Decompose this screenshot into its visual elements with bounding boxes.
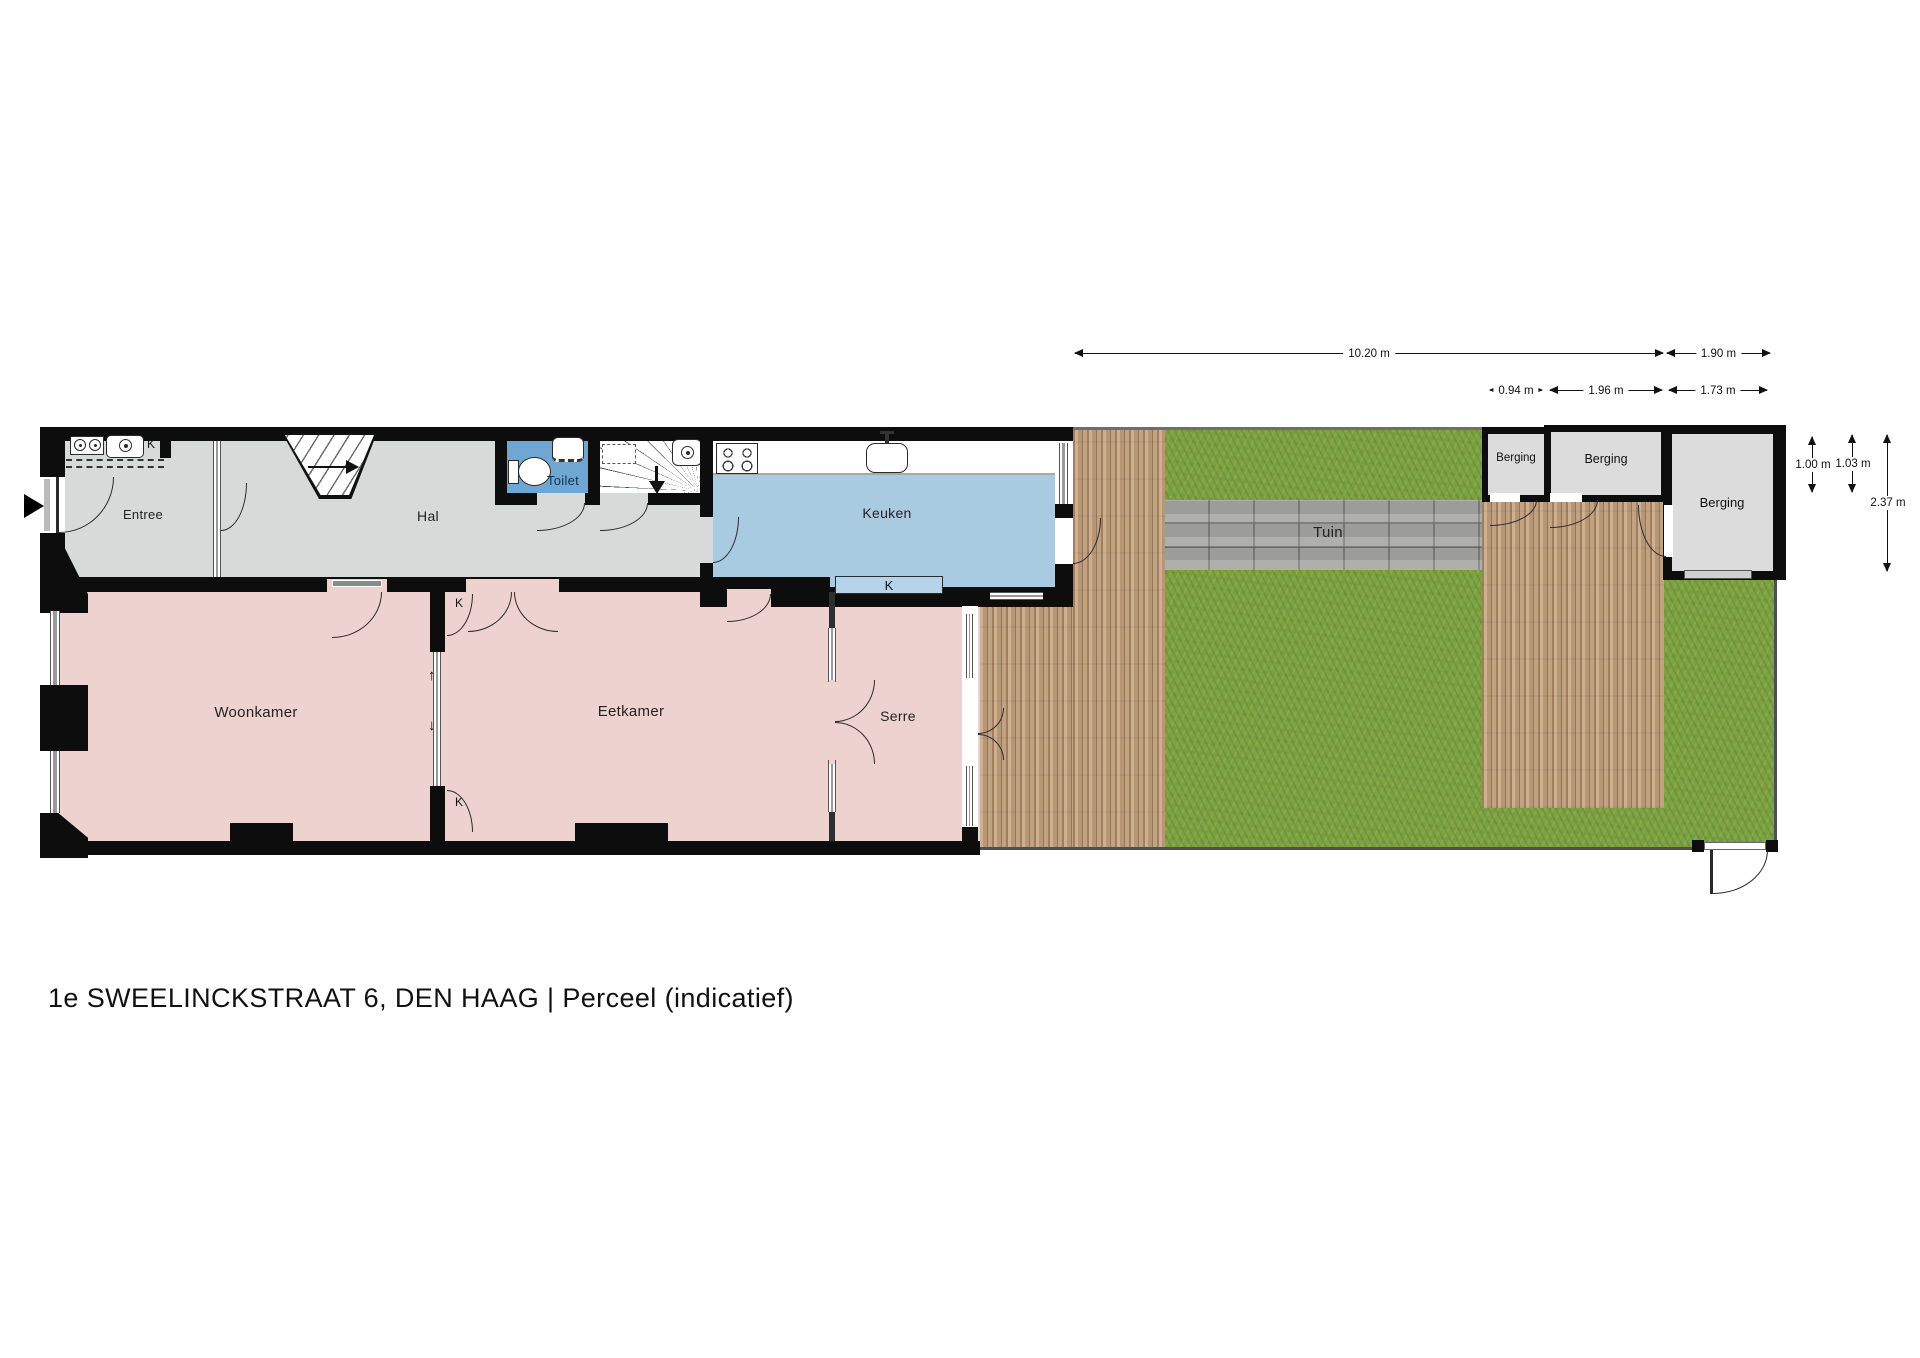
room-label-entree: Entree [93, 507, 193, 522]
meter-dial-right-dot [94, 444, 97, 447]
front-door-frame [44, 479, 50, 531]
serre-west-window-upper [828, 628, 836, 682]
garden-fence-bottom [980, 847, 1777, 850]
bay-window-upper [50, 611, 60, 685]
berging-large-bottom-door [1684, 570, 1752, 579]
room-label-eetkamer: Eetkamer [556, 703, 706, 720]
room-label-berging-small: Berging [1486, 452, 1546, 464]
dim-shed-mid-width: 1.96 m [1550, 390, 1662, 391]
kitchen-sink-icon [866, 443, 908, 473]
kitchen-wall-west-upper [700, 427, 713, 517]
kitchen-faucet-stem [885, 433, 889, 443]
deck-shed-side [1482, 497, 1664, 808]
gate-arc [1713, 850, 1768, 894]
entrance-arrow-icon [24, 494, 44, 518]
entree-dashed-line-1 [66, 459, 164, 461]
toilet-wall-west [495, 427, 507, 493]
room-label-woonkamer: Woonkamer [181, 704, 331, 721]
room-label-keuken: Keuken [837, 505, 937, 521]
entree-wall-stub [160, 441, 171, 458]
kitchen-east-wall-stub [1055, 504, 1073, 518]
wall-bottom [40, 841, 980, 855]
ensuite-arrow-up-icon: ↑ [428, 668, 436, 683]
room-label-hal: Hal [378, 508, 478, 524]
boiler-spiral-dot [124, 444, 128, 448]
dim-shed-mid-depth: 1.03 m [1852, 435, 1853, 492]
stairs-up-direction-line [308, 466, 348, 468]
room-label-berging-mid: Berging [1576, 452, 1636, 466]
dim-shed-small-depth: 1.00 m [1812, 437, 1813, 492]
gate-post-left [1692, 840, 1704, 852]
serre-east-window-lower [966, 766, 973, 826]
kitchen-floor [713, 475, 1055, 587]
cupboard-label-entree: K [143, 437, 159, 451]
stairs-down-arrow-icon [649, 481, 665, 494]
ensuite-arrow-down-icon: ↓ [428, 718, 436, 733]
serre-east-corner-bottom [962, 827, 978, 841]
gate-header [1704, 842, 1766, 850]
garden-fence-right [1774, 580, 1777, 850]
serre-east-window-upper [966, 614, 973, 678]
dim-shed-small-width: 0.94 m [1490, 390, 1542, 391]
berging-small-floor [1488, 434, 1544, 495]
room-label-berging-large: Berging [1692, 495, 1752, 510]
kitchen-east-window [1059, 443, 1068, 504]
eetkamer-door-opening [466, 579, 559, 592]
stairs-up-arrow-icon [346, 460, 359, 474]
meter-dial-left-dot [79, 444, 82, 447]
bay-chimney [40, 685, 88, 751]
room-label-toilet: Toilet [513, 473, 613, 488]
chimney-woonkamer [230, 823, 293, 842]
toilet-sink-icon [552, 437, 584, 462]
entree-hal-partition [213, 441, 221, 577]
floorplan-canvas: Tuin Berging Berging Berging [0, 0, 1920, 1358]
ensuite-wall-bottom [430, 786, 445, 855]
woonkamer-door-bar [332, 580, 382, 587]
mv-unit-spiral-dot [686, 451, 690, 455]
page-title: 1e SWEELINCKSTRAAT 6, DEN HAAG | Perceel… [48, 983, 794, 1014]
stairs-landing-dashed [602, 444, 636, 464]
wall-left-upper [40, 427, 65, 477]
cupboard-label-keuken: K [879, 578, 899, 593]
stove-icon [716, 443, 758, 474]
entree-dashed-line-2 [66, 466, 164, 468]
dim-garden-width: 10.20 m [1075, 353, 1663, 354]
serre-east-corner-top [962, 592, 978, 606]
deck-house-side [1073, 430, 1165, 850]
bay-window-lower [50, 751, 60, 813]
room-label-tuin: Tuin [1278, 524, 1378, 541]
room-label-serre: Serre [848, 708, 948, 724]
dim-shed-large-inner-width: 1.73 m [1669, 390, 1767, 391]
chimney-eetkamer [575, 823, 668, 843]
ensuite-wall-top [430, 577, 445, 652]
kitchen-south-window [990, 592, 1043, 600]
dim-shed-large-depth: 2.37 m [1887, 435, 1888, 571]
dim-shed-large-width: 1.90 m [1667, 353, 1770, 354]
serre-west-window-lower [828, 760, 836, 812]
